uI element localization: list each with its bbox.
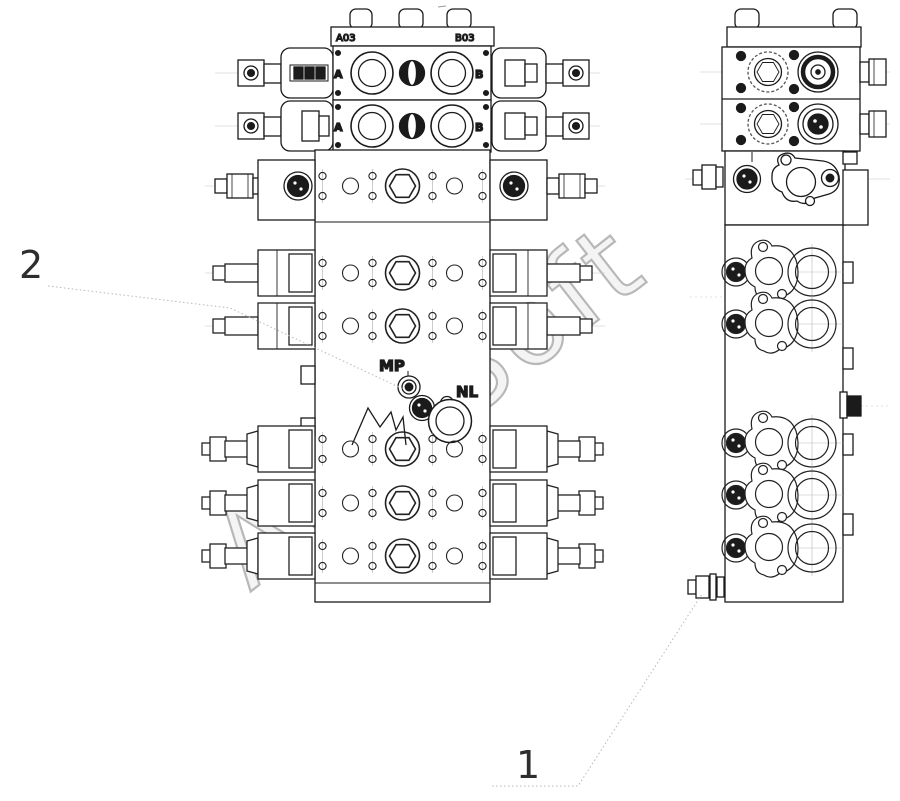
side-view: [685, 9, 890, 602]
callout-2-label: 2: [19, 243, 43, 287]
bottom-hex-plug: [688, 574, 724, 600]
plate-label-b03: B03: [455, 33, 475, 44]
row2-port-a-label: A: [334, 121, 343, 134]
plate-label-a03: A03: [336, 33, 356, 44]
nl-port-label: NL: [456, 383, 479, 401]
valve-assembly-drawing: AutoSoft A03 B03: [0, 0, 900, 801]
side-flange-section: [693, 151, 868, 225]
solenoid-row-2: [238, 100, 589, 152]
solenoid-row-1: [238, 46, 589, 100]
front-view: A03 B03 A B: [202, 6, 605, 602]
side-top-plate: [727, 9, 861, 47]
front-body-column: [315, 150, 490, 602]
callout-1-label: 1: [516, 743, 540, 787]
row2-port-b-label: B: [475, 121, 483, 134]
row1-port-a-label: A: [334, 68, 343, 81]
side-solenoid-section: [722, 47, 886, 151]
mp-port-label: MP: [379, 357, 405, 375]
row1-port-b-label: B: [475, 68, 483, 81]
drawing-canvas: AutoSoft A03 B03: [0, 0, 900, 801]
